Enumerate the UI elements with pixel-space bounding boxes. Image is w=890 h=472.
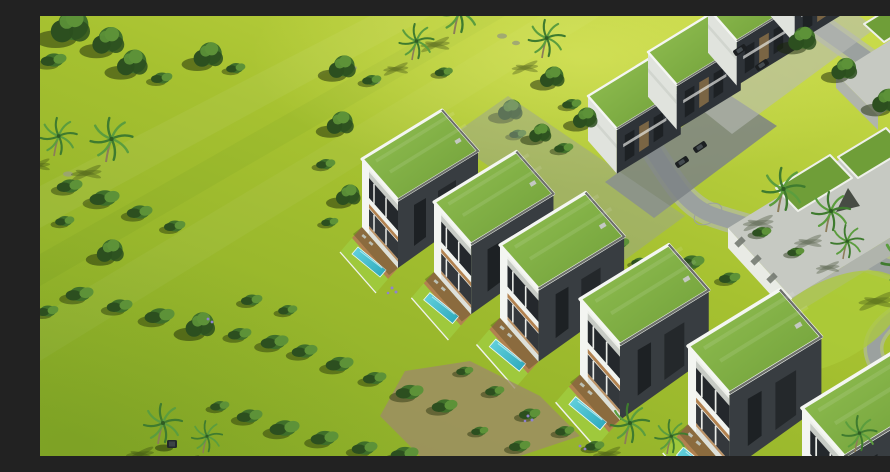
rock [512,41,520,45]
scene-canvas [40,16,890,456]
rock [497,33,507,38]
aerial-render-villa-community [40,16,890,456]
